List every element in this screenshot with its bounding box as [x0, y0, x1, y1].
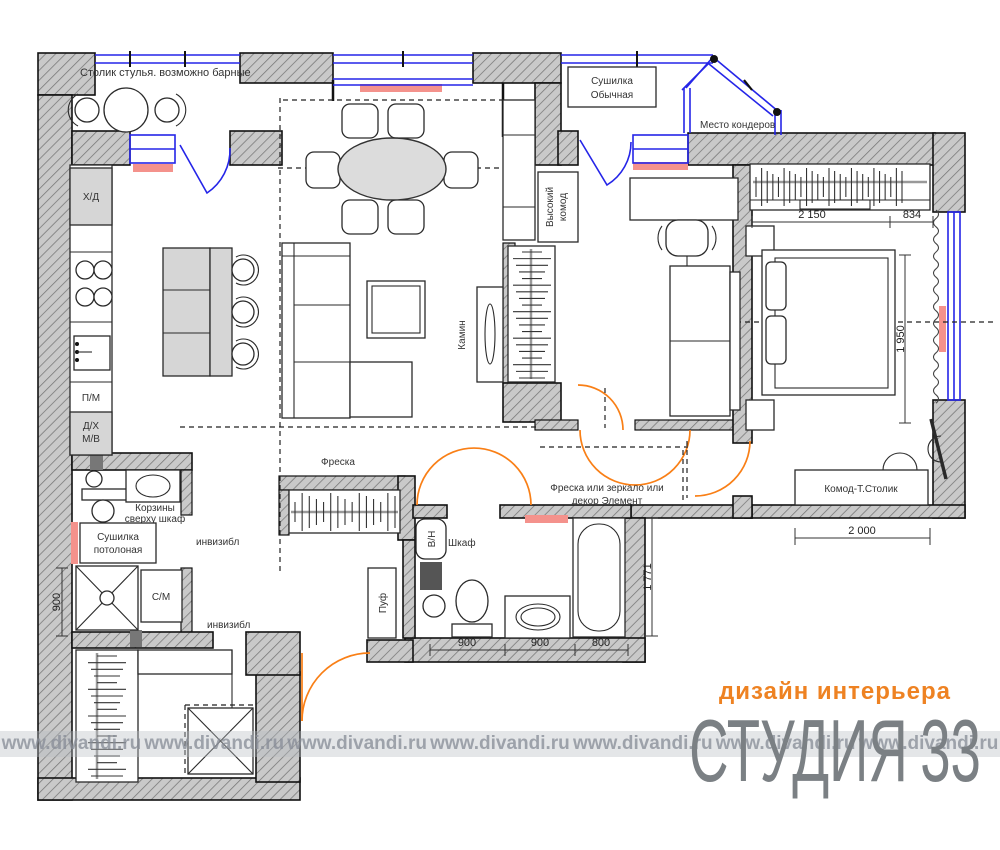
sofa-chaise	[350, 362, 412, 417]
toilet-base	[452, 624, 492, 637]
watermark-text: www.divandi.ru	[287, 733, 427, 755]
chair	[75, 98, 99, 122]
coffee-table	[367, 281, 425, 338]
hob-burner	[76, 261, 94, 279]
washer-label: С/М	[152, 592, 170, 603]
dim-wc-b: 900	[531, 637, 549, 649]
floor-drain	[423, 595, 445, 617]
hob-burner	[76, 288, 94, 306]
bedroom-door-arc	[695, 441, 750, 496]
baskets-label1: Корзины	[135, 503, 175, 514]
kitchen-sink	[74, 336, 110, 370]
hob-burner	[94, 288, 112, 306]
dining-chair	[342, 200, 378, 234]
children-room-door-arc2	[578, 385, 623, 430]
fireplace-label: Камин	[457, 320, 468, 349]
wardrobe-label: Шкаф	[448, 537, 476, 549]
dryer-box	[568, 67, 656, 107]
pillow	[766, 262, 786, 310]
shelf	[138, 650, 232, 674]
balcony-note: Столик стулья. возможно барные	[80, 67, 251, 79]
fresco-decor-label2: декор Элемент	[572, 496, 643, 507]
dryer-label2: Обычная	[591, 89, 633, 101]
dining-area	[306, 104, 478, 234]
fresco-label: Фреска	[321, 457, 355, 468]
entrance-door-arc	[302, 653, 370, 721]
ceiling-dryer-label2: потолоная	[94, 545, 143, 556]
tall-cabinet	[503, 100, 535, 240]
water-heater-label: В/Н	[427, 531, 438, 548]
bathtub	[573, 518, 625, 637]
oven-label2: М/В	[82, 434, 100, 445]
bay-joint	[710, 55, 718, 63]
radiator	[939, 306, 946, 352]
pouf-label: Пуф	[377, 593, 389, 613]
ac-place-label: Место кондеров	[700, 120, 775, 131]
right-balcony: Сушилка Обычная Место кондеров	[568, 67, 775, 131]
commode-label: Комод-Т.Столик	[824, 484, 898, 495]
kitchen-island	[163, 248, 210, 376]
children-sofa-arm	[730, 272, 740, 410]
nightstand	[746, 400, 774, 430]
dining-chair	[342, 104, 378, 138]
chair	[155, 98, 179, 122]
radiator	[525, 515, 568, 523]
wall-block	[90, 455, 103, 470]
island-bar	[210, 248, 232, 376]
children-room-door-arc	[580, 430, 690, 485]
desk	[630, 178, 738, 220]
dining-table	[338, 138, 446, 200]
dressing-room	[76, 650, 253, 782]
toilet-tank	[86, 471, 102, 487]
children-room: Высокий комод	[508, 172, 740, 416]
shaft	[420, 562, 442, 590]
wall-block	[130, 630, 142, 647]
desk-chair	[666, 220, 708, 256]
dim-wc-a: 900	[458, 637, 476, 649]
watermark-text: www.divandi.ru	[2, 733, 142, 755]
doors	[302, 385, 750, 721]
pillow	[766, 316, 786, 364]
dining-chair	[444, 152, 478, 188]
logo-brand: СТУДИЯ 33	[745, 708, 925, 794]
dim-tub: 800	[592, 637, 610, 649]
bar-stool	[232, 343, 254, 365]
dining-chair	[306, 152, 340, 188]
dining-chair	[388, 200, 424, 234]
dim-bed-width: 2 150	[798, 209, 826, 221]
balcony-door	[580, 140, 631, 185]
bar-stool	[232, 259, 254, 281]
dim-bath: 1 771	[642, 563, 654, 591]
logo-number: 33	[920, 708, 981, 794]
fresco-decor-label1: Фреска или зеркало или	[550, 483, 664, 494]
chair-arc	[883, 453, 917, 470]
studio-logo: дизайн интерьера СТУДИЯ 33	[690, 678, 980, 794]
dim-bed-length: 1 950	[895, 325, 907, 353]
floor-plan: Столик стулья. возможно барные Х/Д П/М Д…	[0, 0, 1000, 850]
radiator	[71, 522, 78, 564]
invisible-door-label-b: инвизибл	[207, 619, 250, 631]
bathroom: В/Н Шкаф	[416, 518, 625, 638]
dim-shower: 900	[51, 593, 63, 611]
kitchen: Х/Д П/М Д/Х М/В	[70, 165, 258, 455]
bar-stool	[232, 301, 254, 323]
dim-commode: 2 000	[848, 525, 876, 537]
balcony-door	[180, 145, 230, 193]
dim-bed-right: 834	[903, 209, 921, 221]
watermark-text: www.divandi.ru	[144, 733, 284, 755]
curtain	[934, 210, 939, 403]
dishwasher-label: П/М	[82, 393, 100, 404]
bathroom-door-arc	[417, 448, 531, 505]
logo-studio-text: СТУДИЯ	[689, 708, 908, 794]
ceiling-dryer-label1: Сушилка	[97, 532, 139, 543]
dining-chair	[388, 104, 424, 138]
fireplace-tv	[477, 287, 503, 382]
round-table	[104, 88, 148, 132]
oven-label1: Д/Х	[83, 421, 100, 432]
fridge-label: Х/Д	[83, 192, 99, 203]
toilet	[456, 580, 488, 622]
toilet-shelf	[82, 489, 128, 500]
ceiling-dryer	[80, 523, 156, 563]
invisible-door-label-a: инвизибл	[196, 536, 239, 548]
dryer-label1: Сушилка	[591, 76, 633, 87]
watermark-text: www.divandi.ru	[430, 733, 570, 755]
left-balcony: Столик стулья. возможно барные	[68, 67, 250, 132]
bay-joint	[773, 108, 781, 116]
tall-dresser-label1: Высокий	[545, 187, 556, 227]
tall-dresser-label2: комод	[558, 193, 569, 221]
shower-drain	[100, 591, 114, 605]
toilet	[92, 500, 114, 522]
sofa	[282, 243, 350, 418]
hob-burner	[94, 261, 112, 279]
radiator	[133, 164, 173, 172]
wc-laundry: Корзины сверху шкаф Сушилка потолоная С/…	[76, 470, 185, 630]
